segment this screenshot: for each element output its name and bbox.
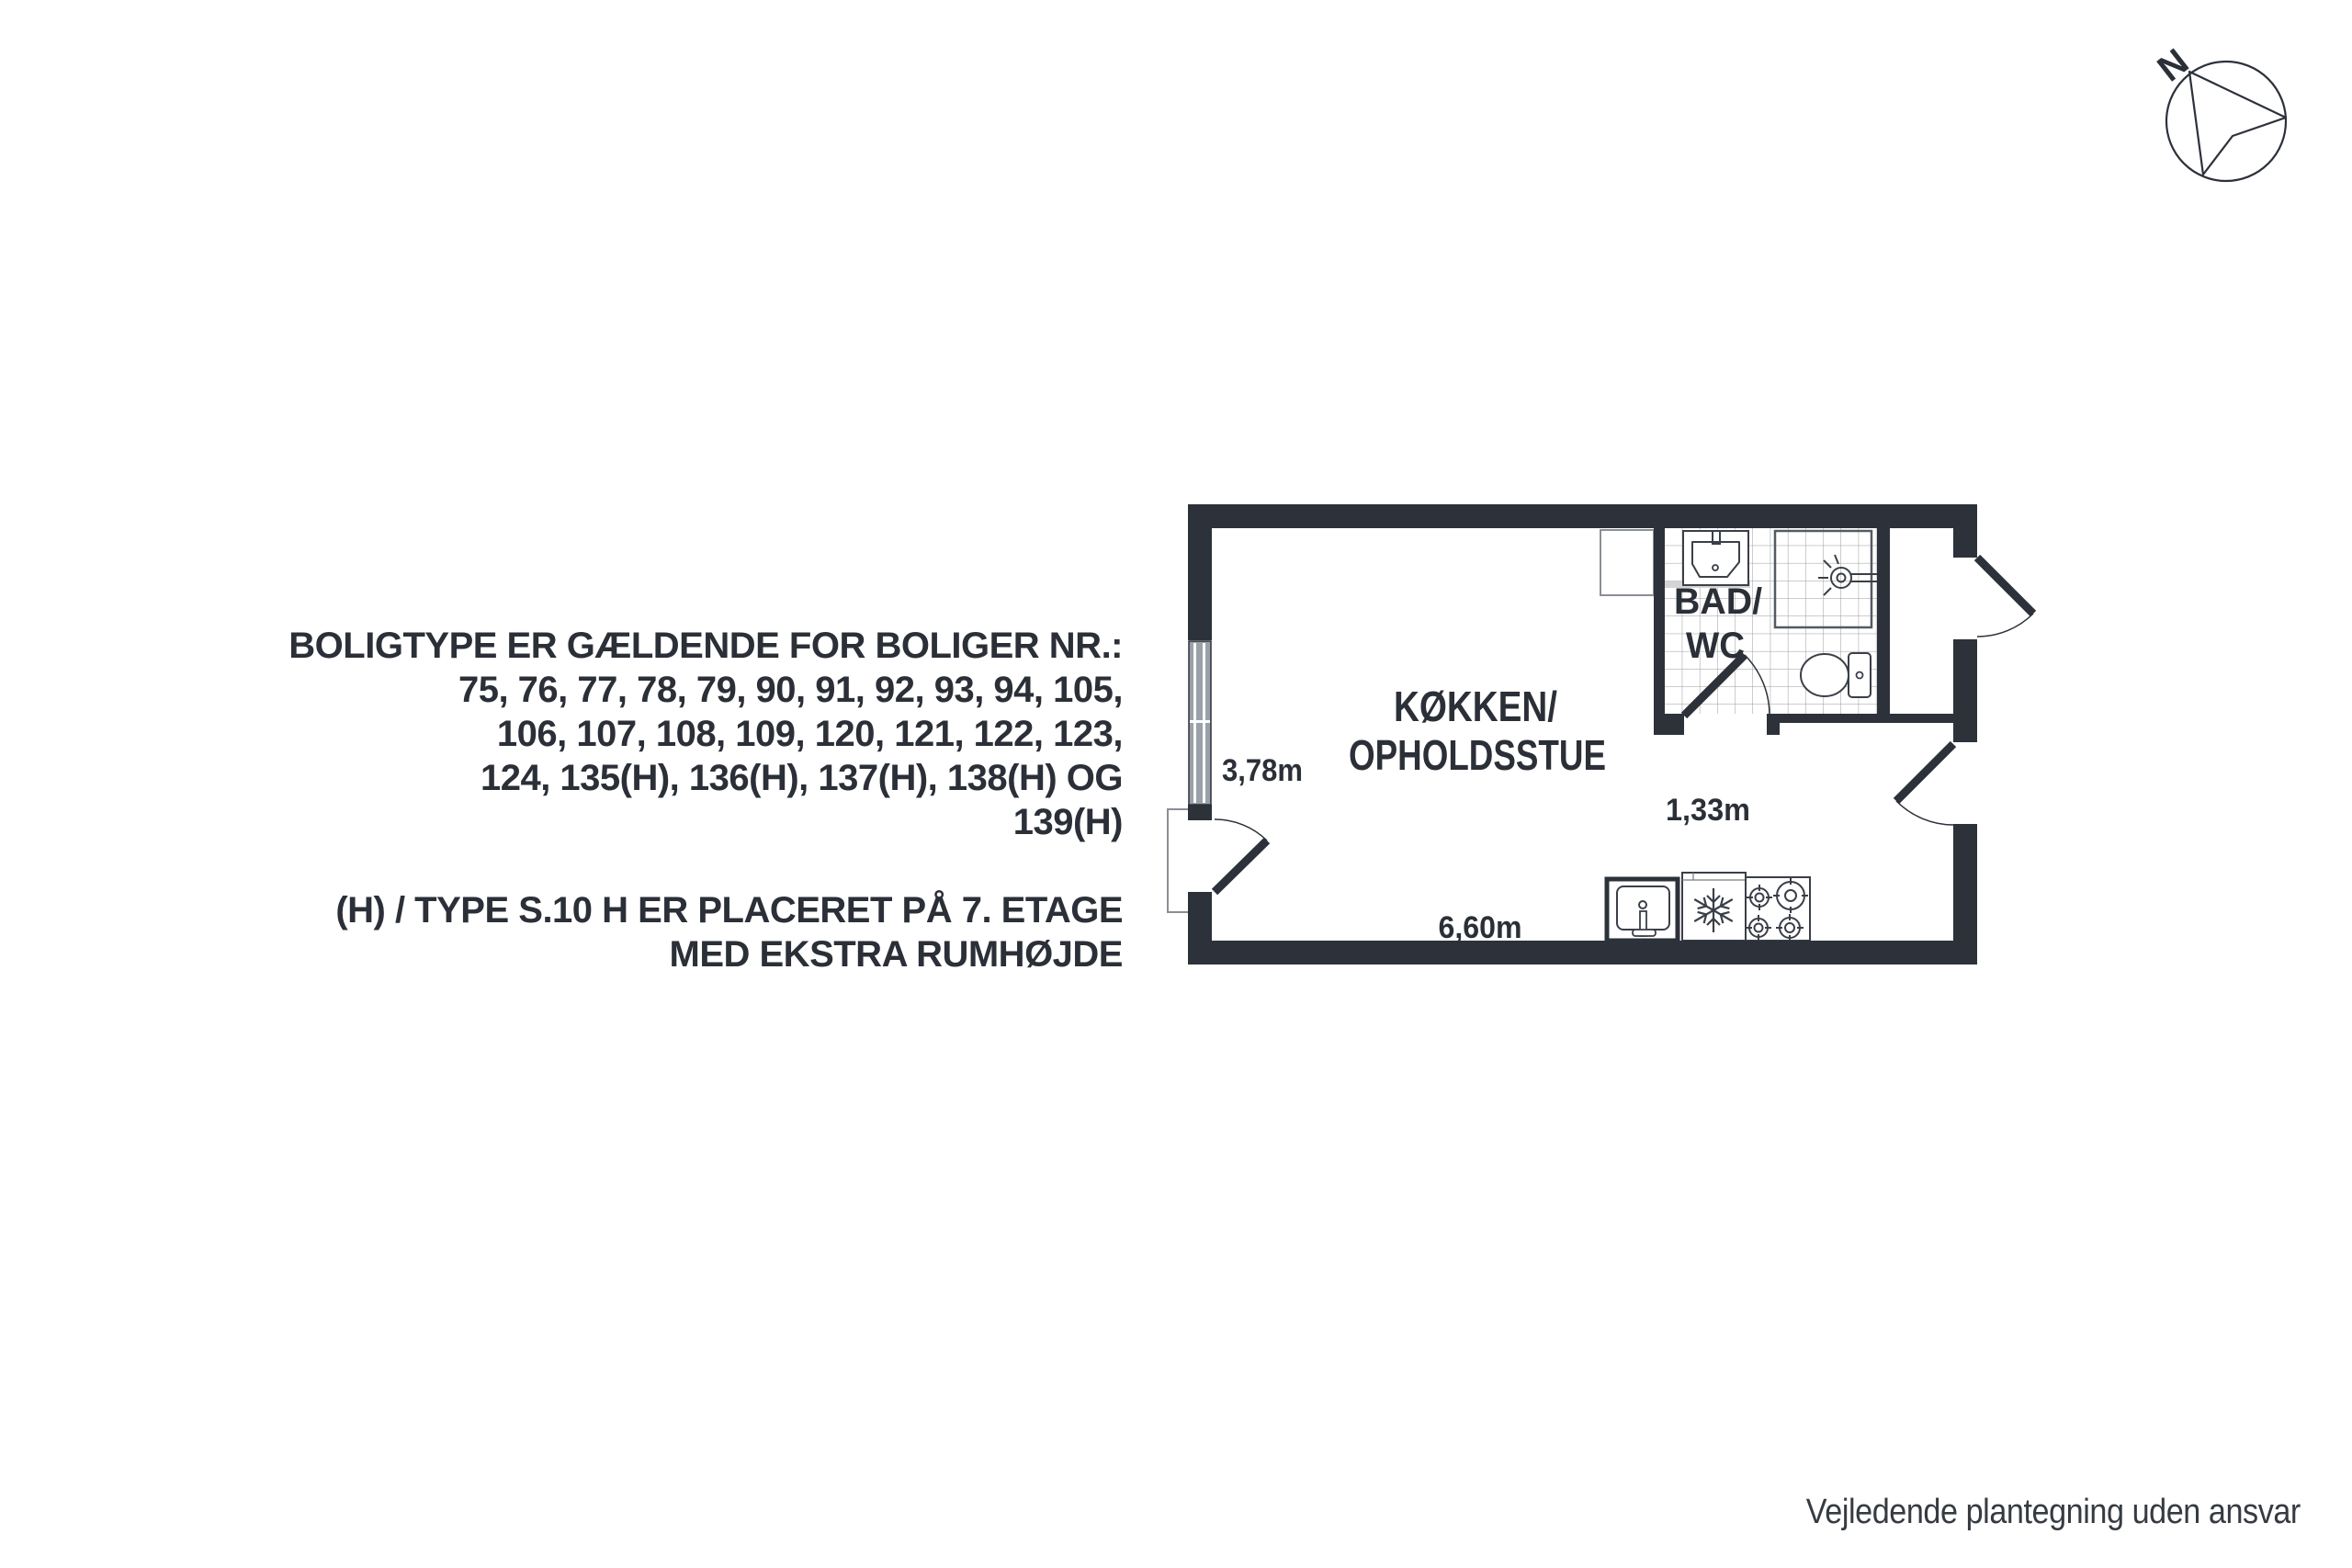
building-note: BOLIGTYPE ER GÆLDENDE FOR BOLIGER NR.: 7… — [288, 624, 1123, 976]
fridge-icon — [1682, 873, 1746, 941]
north-compass: N — [2131, 18, 2352, 239]
room-label-line1: KØKKEN/ — [1394, 682, 1557, 730]
note-line: 139(H) — [288, 800, 1123, 844]
balcony-door — [1977, 558, 2033, 637]
note-paragraph-type: (H) / TYPE S.10 H ER PLACERET PÅ 7. ETAG… — [288, 888, 1123, 976]
note-line: (H) / TYPE S.10 H ER PLACERET PÅ 7. ETAG… — [288, 888, 1123, 932]
bath-label-line2: WC — [1686, 626, 1745, 666]
note-line: 124, 135(H), 136(H), 137(H), 138(H) OG — [288, 756, 1123, 800]
note-line: 75, 76, 77, 78, 79, 90, 91, 92, 93, 94, … — [288, 668, 1123, 712]
dimension-bath: 1,33m — [1666, 793, 1750, 828]
note-line: MED EKSTRA RUMHØJDE — [288, 932, 1123, 976]
north-label: N — [2150, 41, 2196, 89]
bath-label-line1: BAD/ — [1674, 581, 1762, 622]
floorplan-drawing: KØKKEN/ OPHOLDSSTUE BAD/ WC 3,78m 1,33m … — [1167, 496, 2049, 992]
floorplan-page: BOLIGTYPE ER GÆLDENDE FOR BOLIGER NR.: 7… — [0, 0, 2352, 1568]
note-line: BOLIGTYPE ER GÆLDENDE FOR BOLIGER NR.: — [288, 624, 1123, 668]
stove-icon — [1746, 877, 1810, 942]
bathroom-sink-icon — [1683, 531, 1748, 585]
dimension-bottom-wall: 6,60m — [1439, 910, 1522, 945]
toilet-icon — [1801, 653, 1871, 697]
note-paragraph-units: BOLIGTYPE ER GÆLDENDE FOR BOLIGER NR.: 7… — [288, 624, 1123, 844]
window — [1189, 641, 1211, 805]
closet-outline — [1600, 530, 1654, 595]
room-label-line2: OPHOLDSSTUE — [1349, 731, 1606, 779]
note-line: 106, 107, 108, 109, 120, 121, 122, 123, — [288, 712, 1123, 756]
dimension-left-wall: 3,78m — [1222, 753, 1303, 788]
disclaimer-text: Vejledende plantegning uden ansvar — [1806, 1493, 2301, 1532]
right-door — [1896, 744, 1953, 825]
kitchen-sink-icon — [1607, 879, 1678, 941]
entrance-door — [1168, 809, 1267, 912]
